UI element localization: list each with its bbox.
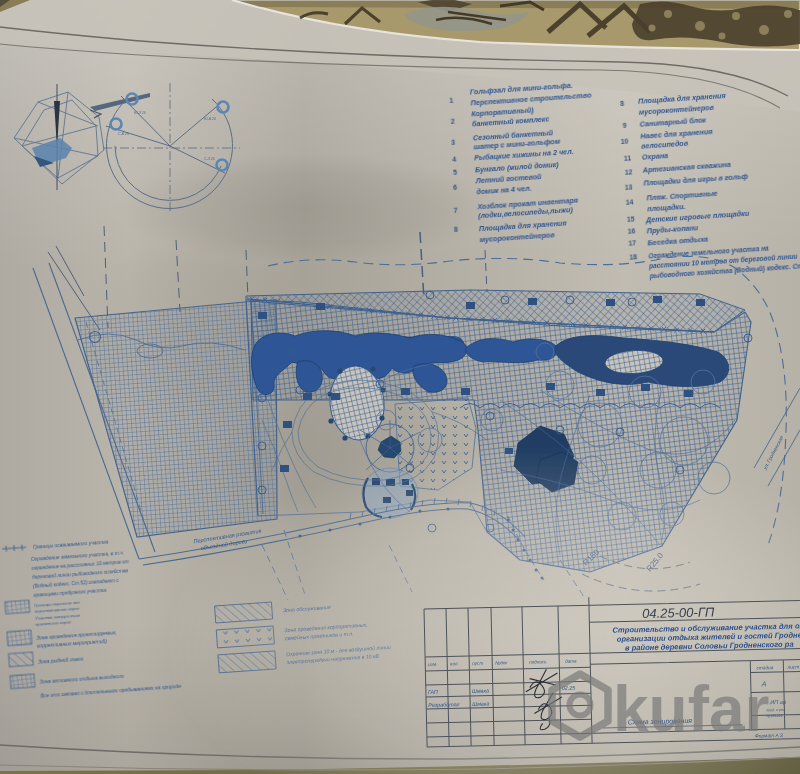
svg-text:Шмака: Шмака — [472, 688, 489, 694]
svg-text:14: 14 — [626, 198, 634, 206]
svg-text:подпись: подпись — [529, 659, 547, 664]
svg-text:C-З 25: C-З 25 — [204, 157, 215, 161]
svg-text:12: 12 — [625, 168, 633, 176]
svg-text:2: 2 — [451, 118, 455, 125]
svg-text:4: 4 — [452, 156, 456, 163]
svg-text:Шмака: Шмака — [472, 701, 489, 707]
svg-text:ГАП: ГАП — [428, 689, 438, 695]
svg-text:№док: №док — [495, 660, 508, 665]
svg-text:кол.: кол. — [450, 661, 459, 666]
svg-text:лист: лист — [786, 665, 799, 670]
svg-text:16: 16 — [627, 227, 635, 235]
svg-text:стадия: стадия — [756, 665, 773, 670]
svg-text:9: 9 — [622, 122, 626, 129]
svg-text:3: 3 — [451, 139, 455, 146]
svg-text:Ю-З 25: Ю-З 25 — [134, 111, 146, 115]
svg-text:дата: дата — [565, 659, 577, 664]
svg-text:11: 11 — [624, 154, 632, 161]
svg-text:7: 7 — [453, 207, 457, 214]
svg-text:Ю-В 25: Ю-В 25 — [204, 117, 216, 121]
svg-text:Охрана: Охрана — [642, 151, 669, 162]
svg-text:18: 18 — [629, 253, 637, 261]
svg-text:5: 5 — [453, 169, 457, 176]
svg-text:8: 8 — [620, 100, 624, 107]
svg-text:ИП ар: ИП ар — [770, 699, 786, 705]
svg-text:Разработал: Разработал — [428, 701, 460, 708]
svg-text:изм.: изм. — [428, 662, 437, 667]
svg-text:пуст: пуст — [472, 661, 483, 666]
svg-text:6: 6 — [453, 184, 457, 191]
svg-text:15: 15 — [627, 215, 635, 223]
svg-text:17: 17 — [628, 239, 636, 247]
svg-text:10: 10 — [621, 138, 629, 146]
svg-text:C-В 25: C-В 25 — [118, 132, 129, 136]
svg-text:kufar: kufar — [613, 673, 770, 745]
svg-text:13: 13 — [625, 183, 633, 191]
svg-text:1: 1 — [449, 97, 453, 104]
svg-text:8: 8 — [454, 226, 458, 233]
svg-text:04.25-00-ГП: 04.25-00-ГП — [642, 604, 715, 621]
